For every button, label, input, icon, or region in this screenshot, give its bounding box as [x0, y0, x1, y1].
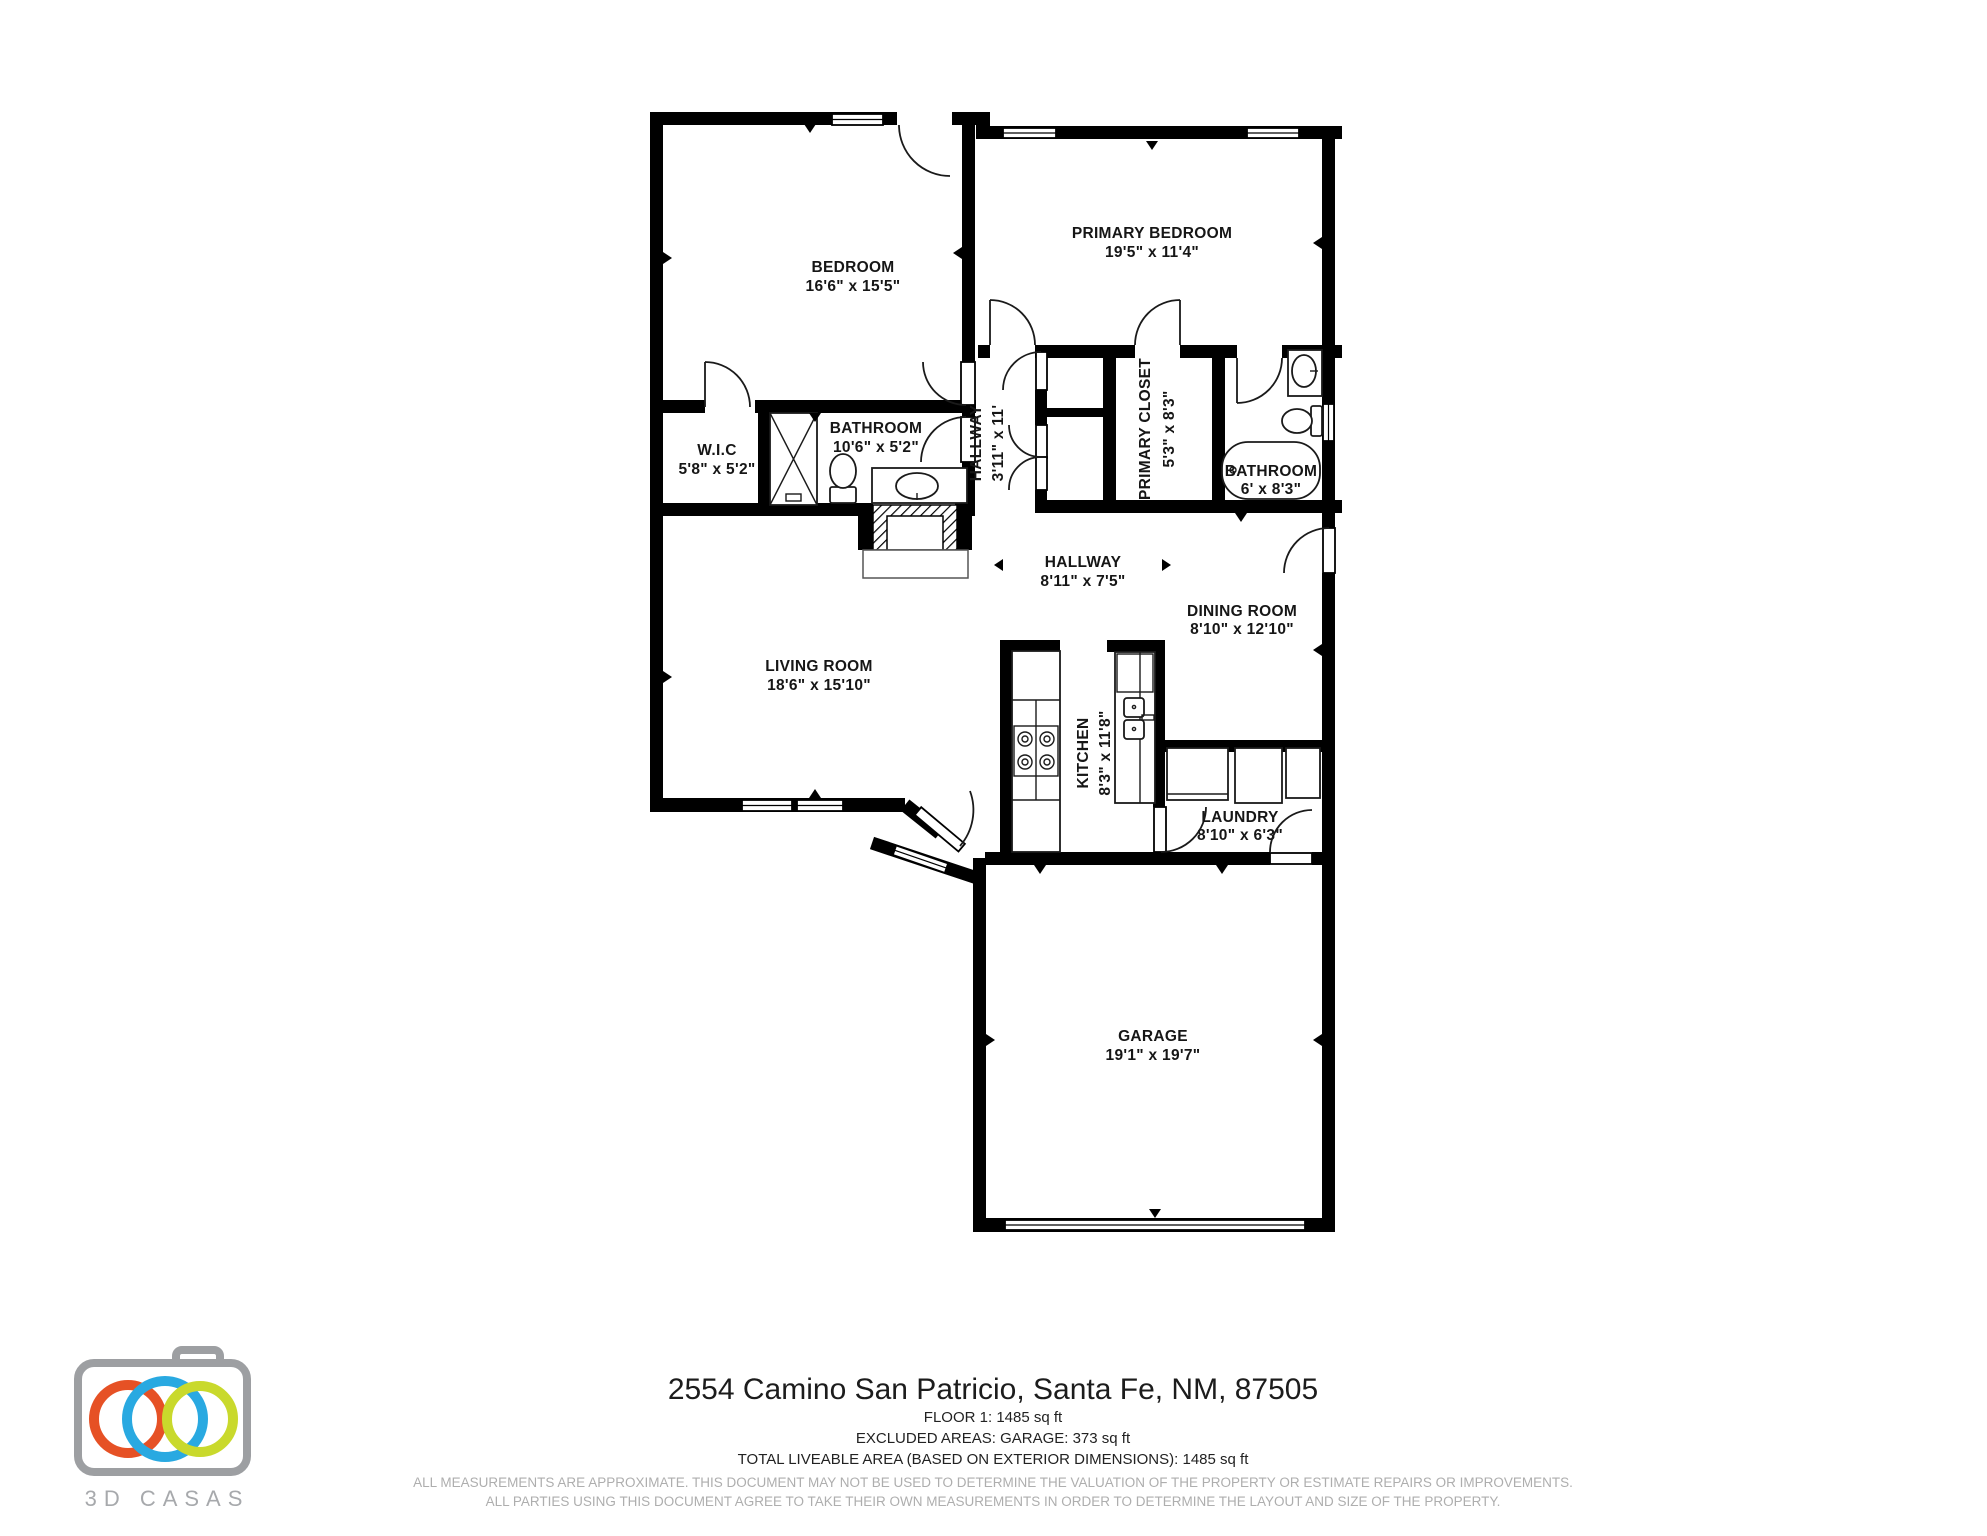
room-label-wic: W.I.C 5'8" x 5'2"	[678, 442, 755, 478]
washer-dryer	[1167, 748, 1320, 803]
room-label-kitchen: KITCHEN 8'3" x 11'8"	[1075, 710, 1114, 795]
kitchen-counter-left	[1012, 651, 1060, 852]
room-label-dining-room: DINING ROOM 8'10" x 12'10"	[1187, 603, 1297, 638]
shower	[770, 413, 817, 505]
sink	[1124, 698, 1144, 717]
garage-door	[1005, 1220, 1305, 1230]
room-label-bathroom: BATHROOM 10'6" x 5'2"	[830, 420, 923, 456]
svg-text:8'11" x 7'5": 8'11" x 7'5"	[1040, 573, 1125, 590]
disclaimer-line-1: ALL MEASUREMENTS ARE APPROXIMATE. THIS D…	[413, 1475, 1573, 1490]
excluded-areas-line: EXCLUDED AREAS: GARAGE: 373 sq ft	[856, 1430, 1131, 1447]
svg-text:8'10" x 6'3": 8'10" x 6'3"	[1197, 827, 1283, 844]
svg-text:5'3" x 8'3": 5'3" x 8'3"	[1161, 390, 1178, 467]
svg-text:6' x 8'3": 6' x 8'3"	[1241, 481, 1302, 498]
svg-text:HALLWAY: HALLWAY	[1045, 554, 1122, 571]
window	[1003, 128, 1056, 138]
svg-text:GARAGE: GARAGE	[1118, 1028, 1188, 1045]
room-label-living-room: LIVING ROOM 18'6" x 15'10"	[765, 658, 873, 694]
dimension-markers	[663, 124, 1322, 1218]
room-label-primary-bedroom: PRIMARY BEDROOM 19'5" x 11'4"	[1072, 225, 1232, 261]
room-label-garage: GARAGE 19'1" x 19'7"	[1106, 1028, 1201, 1064]
svg-text:W.I.C: W.I.C	[697, 442, 736, 459]
primary-closet-door	[1135, 300, 1180, 345]
disclaimer-line-2: ALL PARTIES USING THIS DOCUMENT AGREE TO…	[486, 1494, 1501, 1509]
logo: 3D CASAS	[78, 1350, 249, 1511]
fireplace	[858, 505, 972, 578]
svg-text:BATHROOM: BATHROOM	[1225, 463, 1318, 480]
exterior-door	[899, 125, 950, 176]
svg-text:LIVING ROOM: LIVING ROOM	[765, 658, 873, 675]
window	[742, 800, 792, 811]
hall-closet-door	[1003, 352, 1047, 390]
kitchen-counter-right	[1115, 652, 1155, 803]
walls	[650, 112, 1342, 1232]
svg-text:BATHROOM: BATHROOM	[830, 420, 923, 437]
toilet	[830, 454, 856, 503]
primary-bedroom-door	[990, 300, 1035, 345]
address-title: 2554 Camino San Patricio, Santa Fe, NM, …	[668, 1373, 1318, 1406]
total-area-line: TOTAL LIVEABLE AREA (BASED ON EXTERIOR D…	[738, 1451, 1250, 1468]
wic-door	[705, 362, 750, 407]
svg-text:19'5" x 11'4": 19'5" x 11'4"	[1105, 244, 1199, 261]
primary-bathroom-door	[1237, 358, 1282, 403]
front-entry-door	[915, 791, 974, 851]
hall-closet-double-door	[1009, 425, 1047, 490]
svg-text:5'8" x 5'2": 5'8" x 5'2"	[678, 461, 755, 478]
svg-text:DINING ROOM: DINING ROOM	[1187, 603, 1297, 620]
svg-text:18'6" x 15'10": 18'6" x 15'10"	[767, 677, 871, 694]
window	[1247, 128, 1299, 138]
svg-text:19'1" x 19'7": 19'1" x 19'7"	[1106, 1047, 1201, 1064]
window	[1323, 404, 1334, 441]
footer: 2554 Camino San Patricio, Santa Fe, NM, …	[413, 1373, 1573, 1509]
window	[797, 800, 843, 811]
svg-text:LAUNDRY: LAUNDRY	[1201, 809, 1279, 826]
room-label-laundry: LAUNDRY 8'10" x 6'3"	[1197, 809, 1283, 844]
hearth	[863, 550, 968, 578]
floor-area-line: FLOOR 1: 1485 sq ft	[924, 1409, 1063, 1426]
svg-text:KITCHEN: KITCHEN	[1075, 718, 1092, 789]
floor-plan-canvas: BEDROOM 16'6" x 15'5" PRIMARY BEDROOM 19…	[0, 0, 1987, 1536]
sink-vanity	[872, 468, 967, 503]
sink	[1124, 720, 1144, 739]
svg-text:8'3" x 11'8": 8'3" x 11'8"	[1097, 710, 1114, 795]
window	[832, 114, 883, 125]
svg-text:8'10" x 12'10": 8'10" x 12'10"	[1190, 621, 1294, 638]
svg-text:16'6" x 15'5": 16'6" x 15'5"	[806, 278, 901, 295]
toilet	[1282, 406, 1322, 436]
sink-vanity	[1288, 350, 1322, 396]
svg-text:PRIMARY CLOSET: PRIMARY CLOSET	[1137, 358, 1154, 500]
room-label-hallway-upper: HALLWAY 3'11" x 11'	[968, 404, 1007, 481]
svg-text:10'6" x 5'2": 10'6" x 5'2"	[833, 439, 919, 456]
room-label-bedroom: BEDROOM 16'6" x 15'5"	[806, 259, 901, 295]
room-label-primary-closet: PRIMARY CLOSET 5'3" x 8'3"	[1137, 358, 1178, 500]
dining-exterior-door	[1284, 528, 1335, 573]
room-label-hallway-main: HALLWAY 8'11" x 7'5"	[1040, 554, 1125, 590]
bedroom-door	[923, 362, 975, 405]
svg-text:PRIMARY BEDROOM: PRIMARY BEDROOM	[1072, 225, 1232, 242]
svg-text:BEDROOM: BEDROOM	[811, 259, 894, 276]
svg-text:3'11" x 11': 3'11" x 11'	[990, 405, 1007, 482]
bathroom-door	[921, 417, 975, 462]
svg-text:HALLWAY: HALLWAY	[968, 404, 985, 481]
logo-brand: 3D CASAS	[85, 1486, 250, 1511]
